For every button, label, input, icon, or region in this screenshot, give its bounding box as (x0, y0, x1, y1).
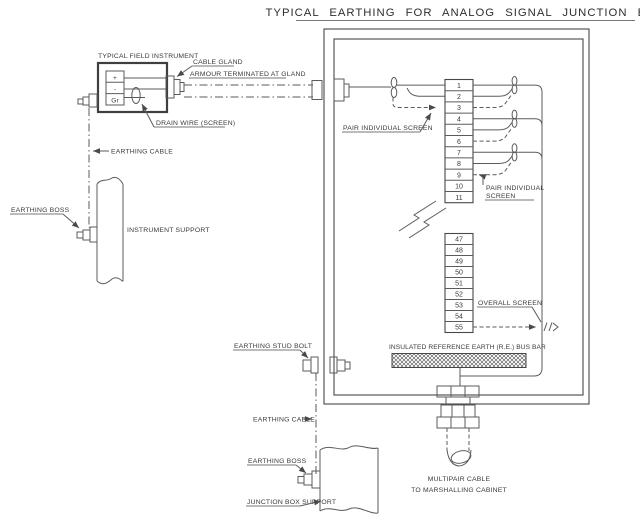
overall-screen-callout: OVERALL SCREEN (477, 300, 542, 322)
instrument-earthing-lug (78, 94, 97, 107)
drain-wire-loop (132, 88, 140, 104)
earthing-stud-bolt-label: EARTHING STUD BOLT (234, 343, 312, 350)
terminal-ground: Gr (111, 98, 119, 105)
multipair-cable-label-line2: TO MARSHALLING CABINET (411, 487, 507, 494)
pair-screen-callout-right: PAIR INDIVIDUAL SCREEN (479, 175, 544, 200)
terminal-number: 55 (455, 325, 463, 332)
earthing-diagram: TYPICAL EARTHING FOR ANALOG SIGNAL JUNCT… (0, 0, 640, 523)
earthing-boss-leader-bottom (296, 465, 306, 473)
overall-screen-label: OVERALL SCREEN (478, 300, 542, 307)
earthing-boss-label-left: EARTHING BOSS (11, 207, 70, 214)
left-earthing-run: EARTHING CABLE EARTHING BOSS (10, 108, 173, 242)
reference-earth-bus-bar: INSULATED REFERENCE EARTH (R.E.) BUS BAR (389, 344, 546, 368)
cable-core (450, 449, 472, 465)
terminal-number: 7 (457, 150, 461, 157)
strip-break-symbol (399, 201, 446, 238)
junction-box-support-label: JUNCTION BOX SUPPORT (247, 499, 336, 506)
field-instrument: TYPICAL FIELD INSTRUMENT + - Gr (78, 53, 198, 112)
earthing-stud-bolt-leader (300, 350, 308, 358)
pair-screen-callout-left: PAIR INDIVIDUAL SCREEN (342, 113, 433, 132)
pair-screen-right-leader (479, 175, 483, 185)
earthing-cable-label-bottom: EARTHING CABLE (253, 417, 315, 424)
terminal-number: 48 (455, 248, 463, 255)
earthing-boss-left (77, 227, 97, 242)
terminal-number: 9 (457, 172, 461, 179)
multipair-wiring (460, 77, 558, 387)
twist-symbol (512, 110, 517, 119)
junction-box-inner-wall (334, 39, 583, 395)
pair-screen-right-label-line2: SCREEN (486, 193, 516, 200)
terminal-number: 1 (457, 83, 461, 90)
drain-screen-run (393, 98, 436, 108)
terminal-strip-upper: 1 2 3 4 5 6 7 8 9 10 11 (445, 80, 473, 203)
terminal-number: 2 (457, 94, 461, 101)
field-instrument-label: TYPICAL FIELD INSTRUMENT (98, 53, 198, 60)
terminal-number: 11 (455, 195, 462, 202)
terminal-number: 49 (455, 259, 463, 266)
twist-symbol (391, 88, 397, 98)
terminal-number: 10 (455, 184, 463, 191)
terminal-number: 53 (455, 303, 463, 310)
earthing-stud-bolt-callout: EARTHING STUD BOLT (233, 343, 312, 358)
terminal-number: 50 (455, 270, 463, 277)
pipe-bottom-break (97, 278, 123, 284)
drain-wire-leader (142, 104, 154, 127)
pair-screen-right-label-line1: PAIR INDIVIDUAL (486, 185, 544, 192)
twist-symbol (512, 119, 517, 128)
terminal-number: 5 (457, 128, 461, 135)
drain-wire-callout: DRAIN WIRE (SCREEN) (142, 104, 235, 127)
terminal-number: 54 (455, 314, 463, 321)
overall-screen-leader (532, 307, 541, 322)
cable-gland-label: CABLE GLAND (193, 59, 243, 66)
earthing-boss-leader-left (63, 214, 79, 228)
instrument-cable-gland (166, 76, 184, 98)
terminal-minus: - (114, 87, 116, 94)
instrument-support-label: INSTRUMENT SUPPORT (127, 227, 210, 234)
multipair-cable-label-line1: MULTIPAIR CABLE (428, 476, 491, 483)
terminal-strip-lower: 47 48 49 50 51 52 53 54 55 (445, 234, 473, 333)
junction-box-cable-gland (312, 79, 349, 101)
pipe-top-break (97, 177, 123, 184)
terminal-number: 52 (455, 292, 463, 299)
terminal-number: 47 (455, 237, 463, 244)
instrument-support-pipe: INSTRUMENT SUPPORT (97, 177, 210, 283)
terminal-plus: + (113, 75, 117, 82)
screen-continuation-symbol (544, 323, 558, 332)
bus-bar-label: INSULATED REFERENCE EARTH (R.E.) BUS BAR (389, 344, 546, 351)
earthing-stud-bolt-assembly (303, 357, 350, 373)
bottom-cable-gland: MULTIPAIR CABLE TO MARSHALLING CABINET (411, 386, 507, 494)
twist-symbol (391, 78, 397, 88)
drawing-title: TYPICAL EARTHING FOR ANALOG SIGNAL JUNCT… (266, 7, 640, 21)
armour-label: ARMOUR TERMINATED AT GLAND (190, 71, 306, 78)
support-top-break (320, 446, 378, 450)
incoming-pair-wiring (349, 78, 445, 108)
terminal-number: 4 (457, 116, 461, 123)
twist-symbol (512, 85, 517, 94)
drain-wire-label: DRAIN WIRE (SCREEN) (156, 120, 235, 127)
bottom-earthing-run: EARTHING CABLE EARTHING BOSS (247, 373, 320, 488)
terminal-number: 3 (457, 105, 461, 112)
bus-bar (392, 354, 526, 368)
page-title: TYPICAL EARTHING FOR ANALOG SIGNAL JUNCT… (266, 7, 640, 19)
earthing-boss-label-bottom: EARTHING BOSS (248, 458, 307, 465)
terminal-number: 6 (457, 139, 461, 146)
twist-symbol (512, 77, 517, 86)
twist-symbol (512, 152, 517, 161)
support-bottom-break (320, 508, 378, 513)
twist-symbol (512, 144, 517, 153)
terminal-number: 8 (457, 161, 461, 168)
armour-callout: ARMOUR TERMINATED AT GLAND (189, 71, 306, 78)
earthing-cable-label-left: EARTHING CABLE (111, 149, 173, 156)
terminal-number: 51 (455, 281, 463, 288)
diagram-svg: TYPICAL EARTHING FOR ANALOG SIGNAL JUNCT… (0, 0, 640, 523)
pair-screen-left-label: PAIR INDIVIDUAL SCREEN (343, 125, 433, 132)
earthing-boss-bottom (298, 471, 320, 488)
